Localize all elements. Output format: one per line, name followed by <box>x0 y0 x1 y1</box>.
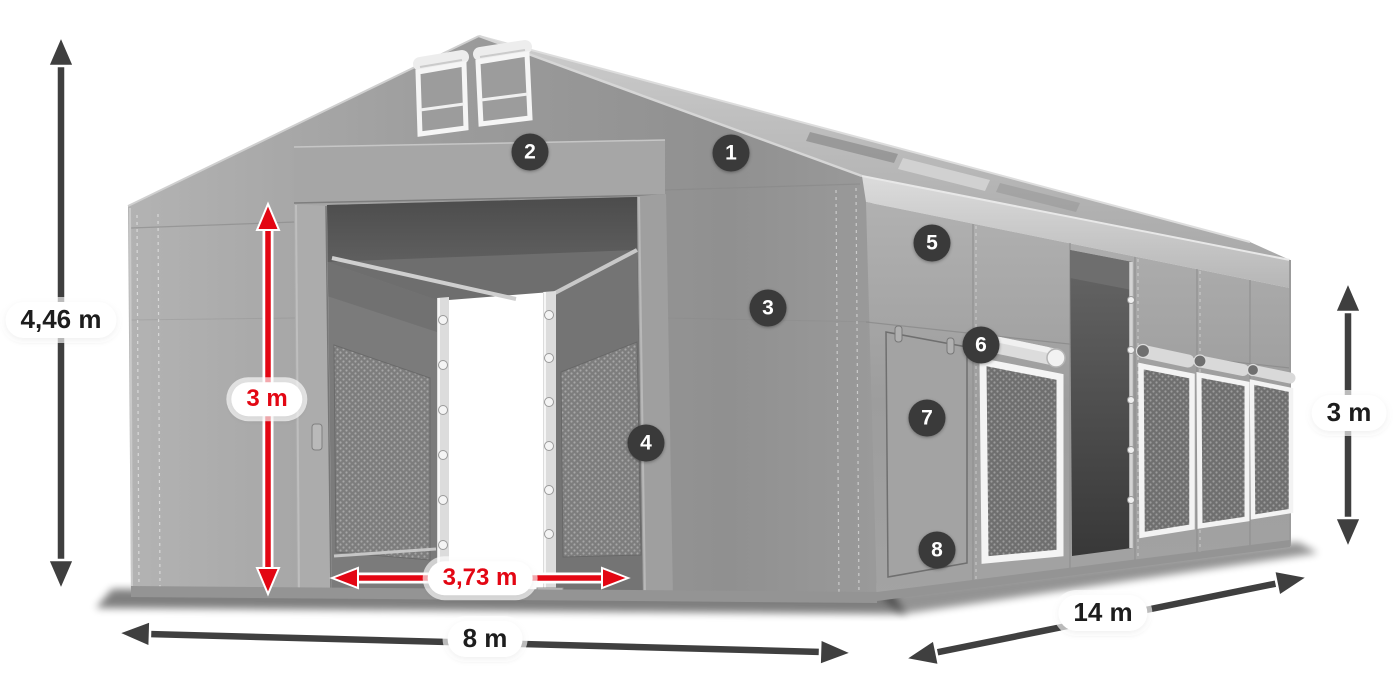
callout-badge-4: 4 <box>628 425 665 462</box>
door-hanger-hook <box>947 338 954 354</box>
callout-badge-1: 1 <box>713 135 750 172</box>
pass-through-opening <box>449 292 551 593</box>
dimension-entrance-width: 3,73 m <box>428 561 533 595</box>
tent-diagram: 4,46 m 3 m 3,73 m 8 m 14 m 3 m 1 2 3 4 5… <box>0 0 1400 700</box>
dimension-front-width: 8 m <box>448 621 523 657</box>
side-mesh-window-2 <box>1137 345 1193 536</box>
side-mesh-window-4 <box>1248 365 1292 518</box>
interior-mesh-window <box>334 345 430 560</box>
callout-badge-6: 6 <box>963 327 1000 364</box>
callout-badge-5: 5 <box>914 225 951 262</box>
door-hanger-hook <box>895 326 902 342</box>
callout-badge-2: 2 <box>512 134 549 171</box>
side-open-doorway <box>1070 250 1135 556</box>
dimension-side-length: 14 m <box>1058 595 1147 631</box>
callout-badge-8: 8 <box>919 532 956 569</box>
entrance-interior <box>327 197 643 597</box>
callout-badge-3: 3 <box>750 290 787 327</box>
door-latch <box>312 424 322 450</box>
dimension-side-height: 3 m <box>1312 395 1387 431</box>
callout-badge-7: 7 <box>909 400 946 437</box>
tent-illustration <box>0 0 1400 700</box>
entrance-header-beam <box>294 140 665 204</box>
vent-frame <box>418 64 466 134</box>
dimension-total-height: 4,46 m <box>6 302 117 338</box>
dimension-entrance-height: 3 m <box>231 382 302 416</box>
vent-frame <box>478 54 530 124</box>
side-mesh-window-3 <box>1194 355 1247 526</box>
